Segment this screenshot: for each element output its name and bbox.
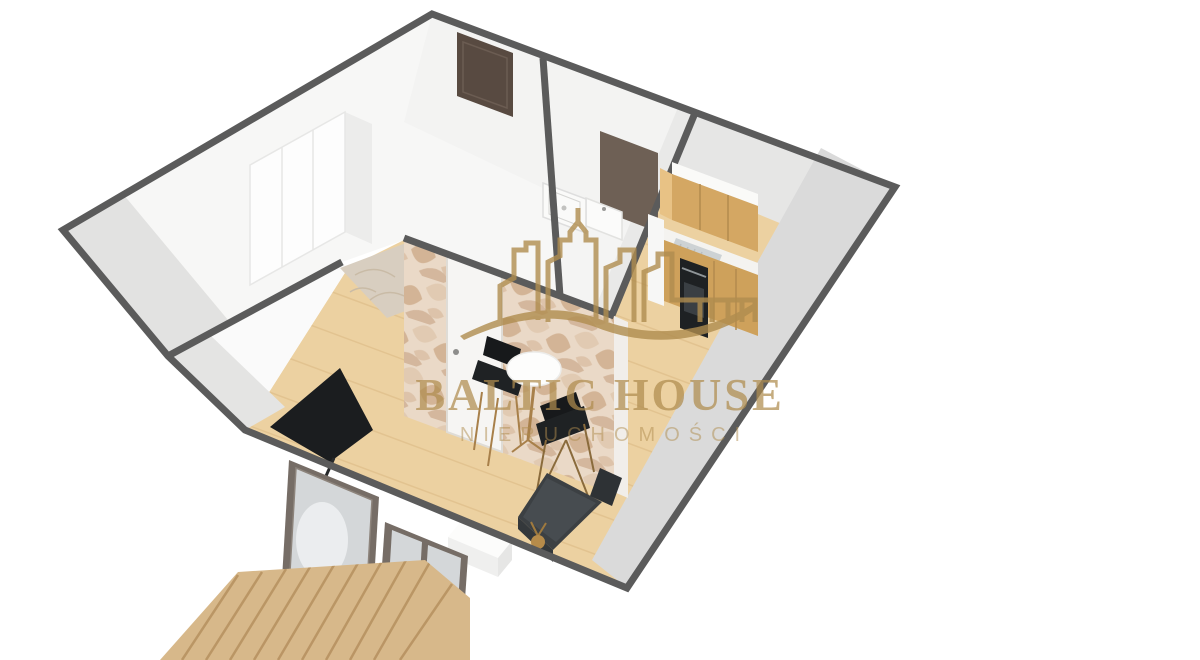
balcony-deck — [160, 560, 470, 660]
floor-plan-render — [0, 0, 1200, 660]
wallpaper-wall-end-face — [614, 316, 628, 498]
kitchen-upper-side — [660, 168, 672, 220]
floor-plan-screenshot: BALTIC HOUSE NIERUCHOMOŚCI — [0, 0, 1200, 660]
